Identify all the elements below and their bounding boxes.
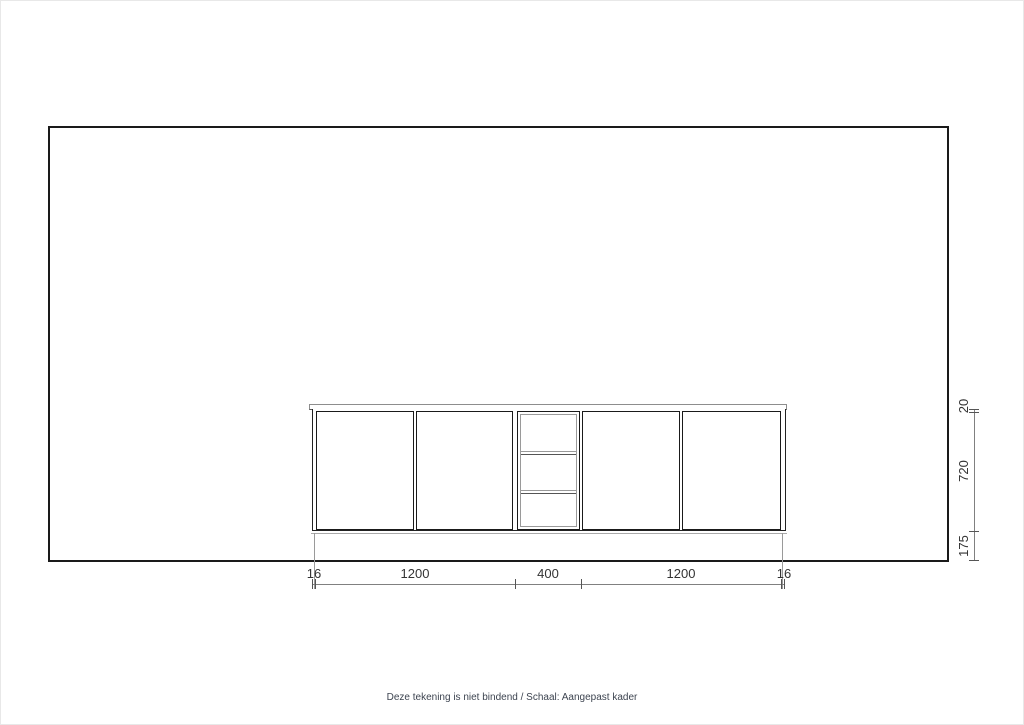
open-shelf-unit-inner bbox=[520, 414, 577, 527]
dim-label-right-doors: 1200 bbox=[651, 567, 711, 581]
shelf-1 bbox=[521, 451, 576, 455]
dimension-tick bbox=[515, 579, 516, 589]
footer-note: Deze tekening is niet bindend / Schaal: … bbox=[1, 692, 1023, 703]
drawing-canvas[interactable]: 16 1200 400 1200 16 20 720 175 Deze teke… bbox=[0, 0, 1024, 725]
dim-label-plinth: 175 bbox=[957, 516, 971, 576]
shelf-2 bbox=[521, 490, 576, 494]
dim-label-right-panel: 16 bbox=[770, 567, 798, 581]
cabinet-door-4[interactable] bbox=[682, 411, 781, 530]
dim-label-left-doors: 1200 bbox=[385, 567, 445, 581]
dim-label-carcass: 720 bbox=[957, 441, 971, 501]
cabinet-door-3[interactable] bbox=[582, 411, 680, 530]
dim-label-worktop: 20 bbox=[957, 376, 971, 436]
dim-label-left-panel: 16 bbox=[300, 567, 328, 581]
cabinet-base-line bbox=[311, 533, 787, 534]
dimension-tick bbox=[581, 579, 582, 589]
cabinet-door-2[interactable] bbox=[416, 411, 513, 530]
horizontal-dimension-line bbox=[312, 584, 785, 585]
vertical-dimension-line bbox=[974, 409, 975, 561]
cabinet-door-1[interactable] bbox=[316, 411, 414, 530]
dim-label-open-shelf: 400 bbox=[518, 567, 578, 581]
